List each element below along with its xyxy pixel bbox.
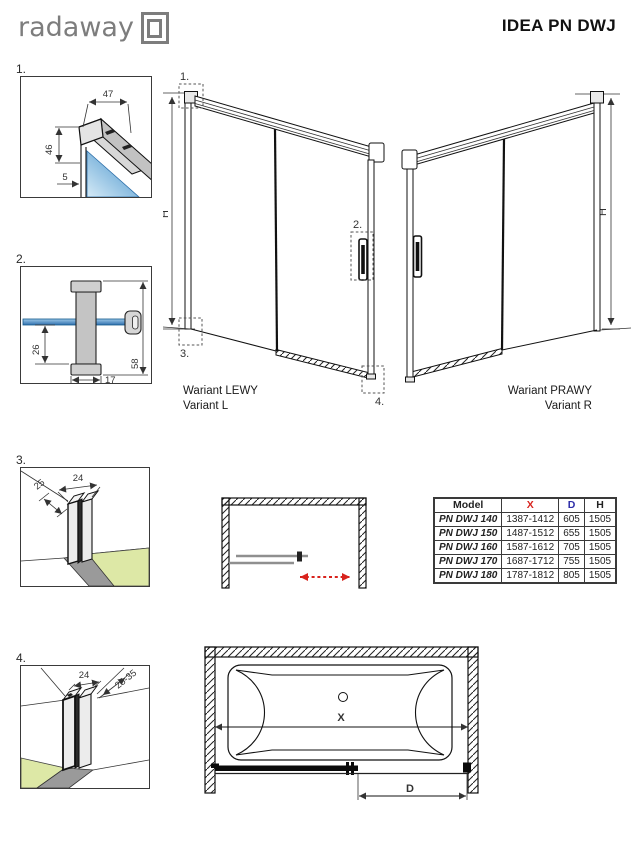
svg-text:1.: 1. bbox=[180, 71, 189, 83]
door-panels bbox=[163, 129, 376, 379]
detail-2-box: 26 17 58 bbox=[20, 266, 152, 384]
door-handle bbox=[359, 239, 367, 280]
door-diagram-variant-r: H bbox=[398, 78, 631, 410]
detail-3-box: 24 25 bbox=[20, 467, 150, 587]
walls bbox=[222, 498, 366, 588]
logo-square-icon bbox=[141, 12, 169, 44]
dim-26: 26 bbox=[31, 325, 69, 364]
svg-text:H: H bbox=[163, 210, 171, 218]
table-row: PN DWJ 170 1687-1712 755 1505 bbox=[434, 555, 616, 569]
radaway-logo: radaway bbox=[18, 12, 169, 44]
table-row: PN DWJ 140 1387-1412 605 1505 bbox=[434, 513, 616, 527]
glass-edge bbox=[23, 319, 127, 325]
detail-4-drawing: 24 25-35 bbox=[21, 666, 149, 788]
variant-l-caption: Wariant LEWY Variant L bbox=[183, 384, 258, 414]
detail-3-drawing: 24 25 bbox=[21, 468, 149, 586]
wall-profile bbox=[185, 92, 198, 330]
col-h: H bbox=[584, 498, 616, 513]
brand-name: radaway bbox=[18, 13, 134, 43]
spec-table: Model X D H PN DWJ 140 1387-1412 605 150… bbox=[433, 497, 617, 584]
dim-46: 46 bbox=[44, 127, 80, 163]
table-header-row: Model X D H bbox=[434, 498, 616, 513]
svg-text:47: 47 bbox=[103, 89, 114, 100]
dim-17: 17 bbox=[71, 375, 116, 383]
detail-4-label: 4. bbox=[16, 651, 26, 665]
col-model: Model bbox=[434, 498, 502, 513]
table-row: PN DWJ 160 1587-1612 705 1505 bbox=[434, 541, 616, 555]
bottom-rail bbox=[413, 349, 502, 378]
detail-1-box: 47 46 5 bbox=[20, 76, 152, 198]
svg-text:58: 58 bbox=[130, 358, 141, 369]
detail-2-drawing: 26 17 58 bbox=[21, 267, 151, 383]
variant-r-caption: Wariant PRAWY Variant R bbox=[440, 384, 592, 414]
detail-4-box: 24 25-35 bbox=[20, 665, 150, 789]
svg-text:24: 24 bbox=[79, 670, 90, 681]
wall-bracket bbox=[463, 763, 471, 773]
wall-profile-section bbox=[63, 686, 97, 770]
detail-3-label: 3. bbox=[16, 453, 26, 467]
svg-text:3.: 3. bbox=[180, 348, 189, 360]
door-diagram-variant-l: H 1. 2. 3. 4. bbox=[163, 60, 400, 418]
dim-5: 5 bbox=[57, 172, 79, 184]
dim-d: D bbox=[358, 774, 467, 800]
handle-mark bbox=[297, 552, 302, 562]
col-d: D bbox=[559, 498, 585, 513]
table-row: PN DWJ 180 1787-1812 805 1505 bbox=[434, 569, 616, 584]
screen-panel bbox=[211, 762, 471, 775]
svg-text:4.: 4. bbox=[375, 396, 384, 408]
svg-text:2.: 2. bbox=[353, 219, 362, 231]
svg-text:5: 5 bbox=[62, 172, 67, 183]
col-x: X bbox=[502, 498, 559, 513]
svg-text:24: 24 bbox=[73, 473, 84, 484]
bathtub-plan-diagram: X D bbox=[200, 643, 492, 805]
table-row: PN DWJ 150 1487-1512 655 1505 bbox=[434, 527, 616, 541]
detail-1-label: 1. bbox=[16, 62, 26, 76]
detail-2-label: 2. bbox=[16, 252, 26, 266]
svg-text:17: 17 bbox=[105, 375, 116, 383]
plan-view-diagram bbox=[215, 493, 370, 593]
bottom-rail bbox=[276, 350, 368, 379]
page-title: IDEA PN DWJ bbox=[420, 16, 616, 36]
top-rail bbox=[402, 103, 594, 169]
svg-text:X: X bbox=[337, 712, 345, 724]
detail-1-drawing: 47 46 5 bbox=[21, 77, 151, 197]
sliding-panels bbox=[229, 552, 308, 564]
svg-text:46: 46 bbox=[44, 144, 55, 155]
svg-text:25-35: 25-35 bbox=[113, 668, 139, 692]
wall-knob bbox=[125, 311, 141, 334]
wall-profile-section bbox=[68, 491, 98, 564]
svg-text:26: 26 bbox=[31, 344, 42, 355]
top-rail bbox=[195, 96, 384, 162]
door-handle bbox=[414, 236, 422, 277]
handle-section bbox=[71, 281, 101, 375]
svg-text:D: D bbox=[406, 783, 414, 795]
drain bbox=[339, 693, 348, 702]
